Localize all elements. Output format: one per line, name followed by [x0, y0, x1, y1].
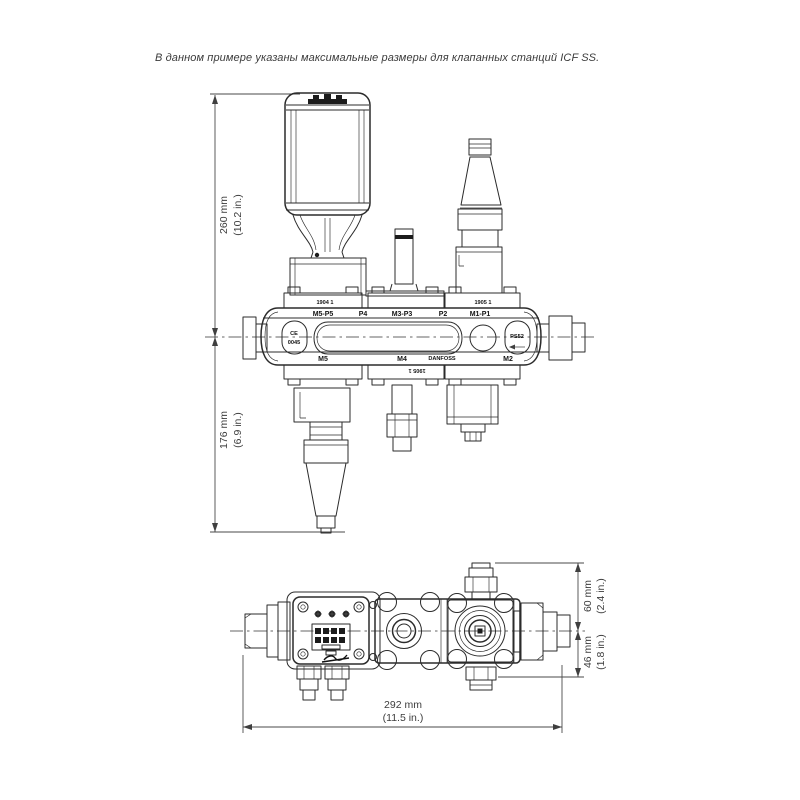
control-box: [287, 592, 380, 700]
right-end-cap: PS52: [505, 321, 530, 354]
flange-mark-bottom: 1905 1: [408, 367, 425, 373]
port-label-m1p1: M1-P1: [470, 311, 491, 318]
dim-176mm-in: (6.9 in.): [232, 412, 244, 448]
page: В данном примере указаны максимальные ра…: [0, 0, 800, 800]
port-label-p4: P4: [359, 311, 368, 318]
technical-drawing: 260 mm (10.2 in.) 176 mm (6.9 in.): [0, 0, 800, 800]
cable-glands: [297, 666, 349, 700]
cap-ce-mark: CE: [290, 331, 298, 337]
port-label-m2: M2: [503, 356, 513, 363]
manifold-body: 1904 1 1905 1 CE 0045: [261, 287, 541, 385]
flange-mark-right: 1905 1: [474, 300, 491, 306]
dim-46mm: 46 mm: [582, 636, 594, 668]
top-fitting: [465, 563, 497, 599]
led-indicator-icons: [314, 610, 350, 618]
dim-292mm-in: (11.5 in.): [383, 712, 424, 724]
connector-icon: [308, 94, 347, 104]
brand-danfoss: DANFOSS: [428, 356, 456, 362]
bottom-view-width-dimension: 292 mm (11.5 in.): [243, 655, 562, 733]
cap-ps52-mark: PS52: [510, 334, 524, 340]
port-label-p2: P2: [439, 311, 448, 318]
dim-176mm: 176 mm: [218, 411, 230, 449]
expansion-valve-bottom: [294, 388, 350, 533]
manifold-top-view: [375, 563, 520, 690]
dim-60mm-in: (2.4 in.): [595, 578, 607, 614]
dim-292mm: 292 mm: [384, 699, 422, 711]
bottom-view: 60 mm (2.4 in.) 46 mm (1.8 in.) 292 mm (…: [230, 563, 607, 733]
dim-60mm: 60 mm: [582, 580, 594, 612]
cap-0045-mark: 0045: [288, 340, 300, 346]
manual-valve-top: [456, 139, 502, 293]
port-label-m5p5: M5-P5: [313, 311, 334, 318]
dim-46mm-in: (1.8 in.): [595, 634, 607, 670]
port-label-m4: M4: [397, 356, 407, 363]
left-end-cap: CE 0045: [282, 321, 307, 354]
keypad-display: [312, 624, 350, 655]
service-valve-bottom: [447, 385, 498, 441]
drain-plug-bottom: [387, 385, 417, 451]
flange-mark-left: 1904 1: [316, 300, 333, 306]
sensor-stem: [366, 229, 444, 296]
front-view: 260 mm (10.2 in.) 176 mm (6.9 in.): [205, 93, 598, 533]
dim-260mm-in: (10.2 in.): [232, 194, 244, 235]
front-right-pipe: [537, 316, 585, 360]
motor-valve-icm: [285, 93, 370, 295]
dim-260mm: 260 mm: [218, 196, 230, 234]
bottom-right-pipe: [514, 603, 570, 660]
bottom-fitting: [466, 667, 496, 690]
bottom-view-right-dimensions: 60 mm (2.4 in.) 46 mm (1.8 in.): [495, 563, 607, 677]
port-label-m3p3: M3-P3: [392, 311, 413, 318]
danfoss-logo: [322, 655, 349, 662]
port-label-m5: M5: [318, 356, 328, 363]
